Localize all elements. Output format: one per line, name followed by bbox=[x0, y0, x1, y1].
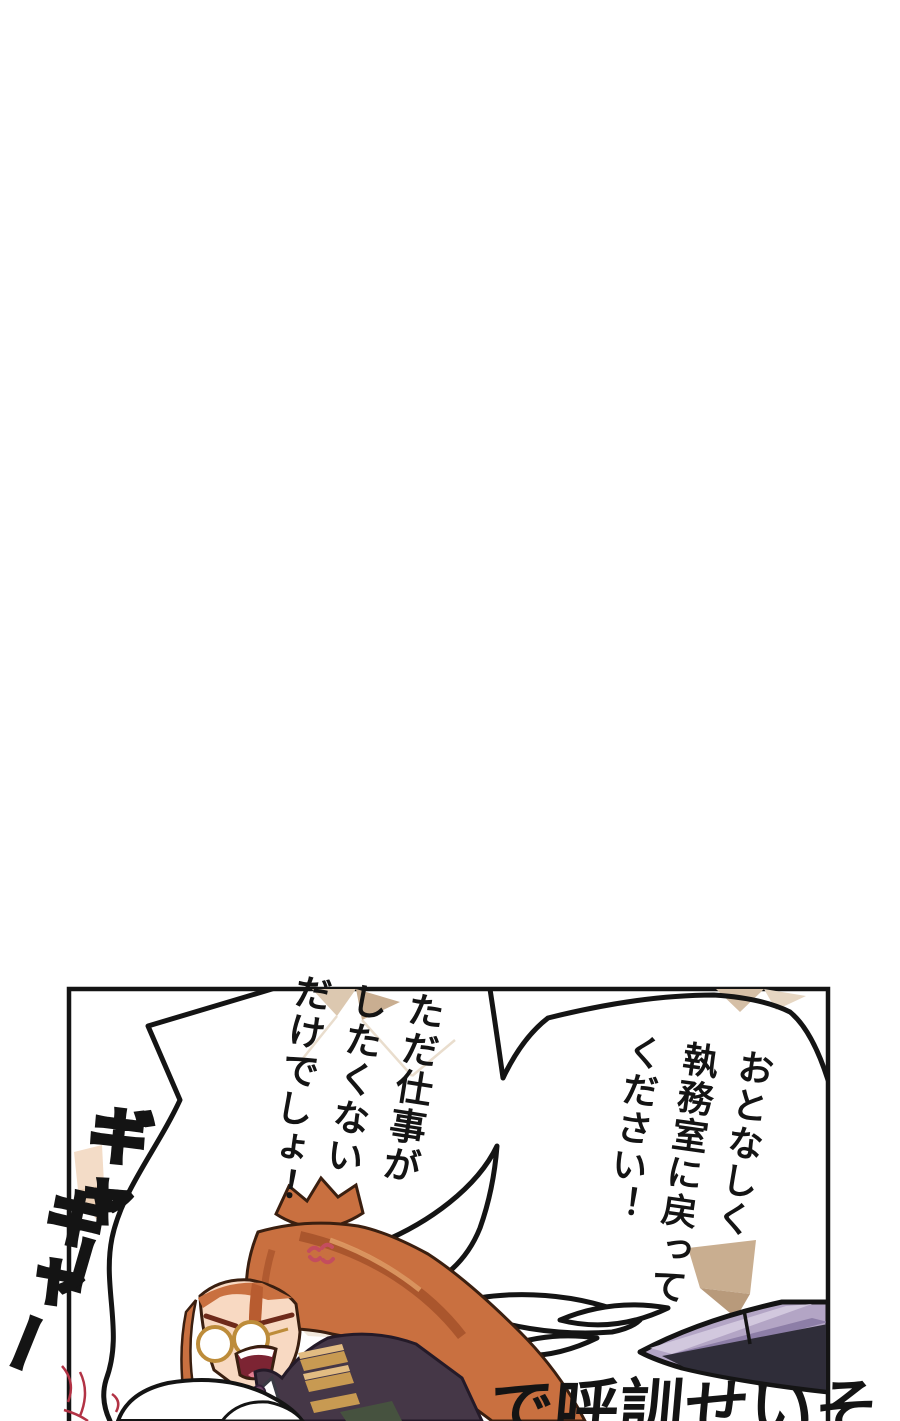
bottom-cutoff-text: で呼訓せいそ bbox=[486, 1358, 884, 1421]
manga-page: おとなしく 執務室に戻って ください！ ただ仕事が したくない だけでしょ！ ギ… bbox=[0, 0, 900, 1421]
speech-bubble-left-text: ただ仕事が したくない だけでしょ！ bbox=[247, 969, 454, 1227]
panel-artwork bbox=[0, 980, 900, 1421]
